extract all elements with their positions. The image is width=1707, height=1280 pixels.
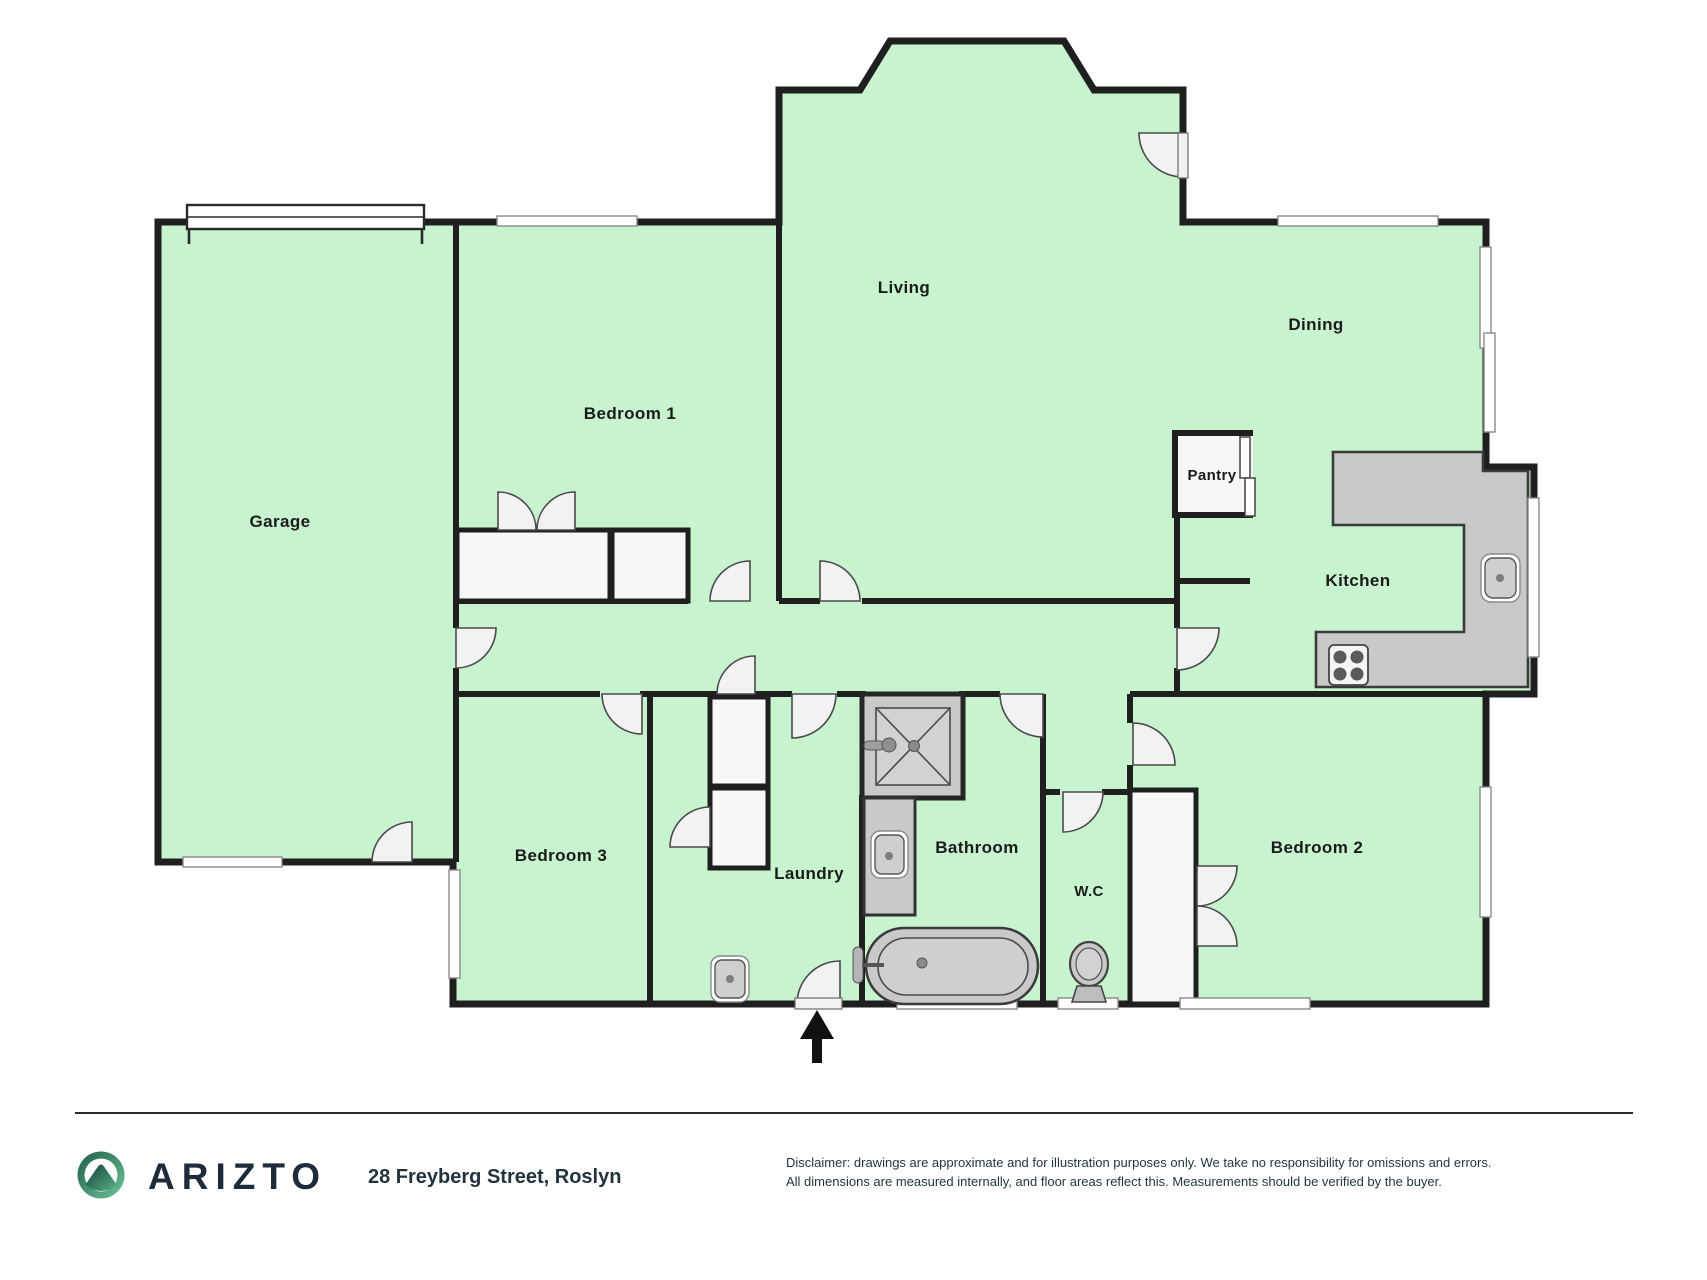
floorplan-canvas: Garage Bedroom 1 Living Dining Pantry Ki… (0, 0, 1707, 1280)
window (1278, 216, 1438, 226)
bathtub-icon (853, 928, 1038, 1004)
window (1180, 998, 1310, 1009)
window (183, 857, 282, 867)
laundry-closet-lower (710, 788, 768, 868)
bedroom2-wardrobe (1130, 790, 1196, 1004)
door-leaf (795, 998, 842, 1009)
room-label-pantry: Pantry (1187, 467, 1236, 484)
vanity-sink-icon (864, 798, 915, 915)
building-outline (158, 41, 1534, 1004)
brand-name: ARIZTO (148, 1156, 327, 1197)
footer: ARIZTO 28 Freyberg Street, Roslyn Discla… (75, 1113, 1633, 1199)
room-label-garage: Garage (250, 512, 311, 531)
room-label-kitchen: Kitchen (1325, 571, 1390, 590)
room-label-bedroom3: Bedroom 3 (515, 846, 607, 865)
window (1484, 333, 1495, 432)
pantry-slider-door (1245, 478, 1255, 516)
room-label-bathroom: Bathroom (935, 838, 1018, 857)
entrance-arrow-icon (800, 1010, 834, 1063)
disclaimer-line-1: Disclaimer: drawings are approximate and… (786, 1155, 1491, 1170)
brand-logo (78, 1152, 125, 1199)
room-label-laundry: Laundry (774, 864, 844, 883)
bedroom1-closet-a (457, 530, 610, 601)
window (449, 870, 460, 978)
room-label-dining: Dining (1288, 315, 1343, 334)
pantry-slider-door (1240, 437, 1250, 478)
room-label-wc: W.C (1074, 883, 1104, 900)
floorplan: Garage Bedroom 1 Living Dining Pantry Ki… (158, 41, 1539, 1063)
laundry-closet-upper (710, 697, 768, 786)
property-address: 28 Freyberg Street, Roslyn (368, 1166, 621, 1188)
shower-icon (862, 694, 963, 798)
door-leaf (1178, 133, 1188, 178)
room-label-living: Living (878, 278, 930, 297)
floorplan-page: Garage Bedroom 1 Living Dining Pantry Ki… (0, 0, 1707, 1280)
stove-icon (1329, 645, 1368, 685)
room-label-bedroom1: Bedroom 1 (584, 404, 676, 423)
disclaimer: Disclaimer: drawings are approximate and… (786, 1155, 1491, 1189)
disclaimer-line-2: All dimensions are measured internally, … (786, 1174, 1442, 1189)
kitchen-sink-icon (1481, 554, 1520, 602)
room-label-bedroom2: Bedroom 2 (1271, 838, 1363, 857)
window (1480, 787, 1491, 917)
toilet-icon (1070, 942, 1108, 1002)
laundry-sink-icon (711, 956, 749, 1002)
window (1528, 498, 1539, 657)
bedroom1-closet-b (612, 530, 688, 601)
window (497, 216, 637, 226)
